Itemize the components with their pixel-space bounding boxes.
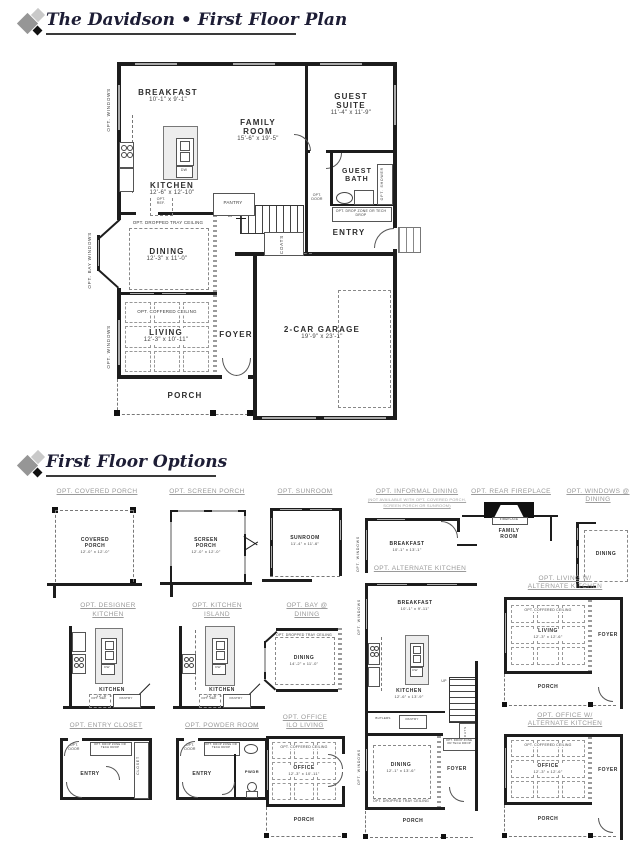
- option-title: OPT. ALTERNATE KITCHEN: [374, 565, 466, 572]
- room-dims: 15'-6" x 19'-5": [231, 136, 285, 143]
- window-segment: [340, 520, 341, 540]
- wall: [342, 786, 345, 806]
- door-arc: [180, 741, 195, 756]
- room-name: PORCH: [538, 685, 559, 691]
- entry-stoop: [398, 227, 421, 253]
- window-segment: [377, 584, 407, 585]
- room-name: PORCH: [294, 818, 315, 824]
- room-name: LIVING: [144, 328, 189, 337]
- window-segment: [366, 599, 367, 629]
- window-segment: [98, 240, 99, 266]
- french-door-arc: [328, 754, 343, 769]
- room-name: FOYER: [219, 330, 253, 339]
- house-wall: [262, 579, 312, 582]
- front-door-arc: [222, 358, 237, 376]
- room-name: DINING: [596, 552, 617, 558]
- door-opening: [310, 150, 326, 153]
- room-name: FOYER: [447, 767, 467, 773]
- room-label-porch: PORCH: [536, 817, 561, 823]
- room-dims: 10'-1" x 13'-1": [389, 548, 424, 553]
- screen-segment: [212, 510, 238, 512]
- room-name: COVERED PORCH: [75, 538, 115, 550]
- cased-opening-wall: [437, 736, 441, 807]
- window-segment: [130, 293, 154, 294]
- counter-line: [381, 637, 382, 691]
- wall: [620, 597, 623, 709]
- option-title: OPT. INFORMAL DINING: [376, 488, 458, 495]
- coats-label: COATS: [280, 235, 285, 254]
- room-label-porch: PORCH: [166, 391, 205, 400]
- porch-post: [588, 833, 593, 838]
- porch-post: [502, 702, 507, 707]
- french-door-arc: [328, 772, 343, 787]
- wall: [330, 150, 333, 206]
- room-name: PORCH: [403, 819, 424, 825]
- option-sunroom: OPT. SUNROOM SUNROOM 11'-4" x 11'-6": [262, 488, 350, 600]
- option-title: OPT. BAY @: [286, 602, 327, 609]
- island-sink-bowl: [413, 655, 421, 663]
- room-label-guest-suite: GUEST SUITE 11'-4" x 11'-9": [327, 92, 375, 117]
- room-label: ENTRY: [190, 772, 213, 778]
- room-dims: 12'-6" x 12'-10": [149, 190, 194, 197]
- room-label-garage: 2-CAR GARAGE 19'-9" x 23'-1": [282, 325, 362, 341]
- options-header: First Floor Options: [0, 448, 640, 488]
- wall: [342, 736, 345, 754]
- wall: [60, 738, 63, 800]
- house-wall: [170, 582, 173, 597]
- option-title: OPT. KITCHEN: [192, 602, 242, 609]
- pantry-label: PANTRY: [223, 200, 242, 205]
- room-dims: 12'-1" x 13'-6": [386, 769, 415, 774]
- room-name: PORCH: [538, 817, 559, 823]
- stairs: [449, 677, 477, 723]
- room-label-foyer: FOYER: [445, 767, 469, 773]
- room-label-foyer: FOYER: [596, 633, 620, 639]
- option-title: DINING: [294, 611, 319, 618]
- drop-zone-label: OPT. DROP ZONE OR TECH DROP: [444, 739, 474, 746]
- option-title: ILO LIVING: [286, 722, 324, 729]
- door-arc: [64, 741, 79, 756]
- room-label: FAMILY ROOM: [491, 529, 527, 541]
- room-label-foyer: FOYER: [217, 330, 255, 339]
- front-wall: [266, 804, 345, 807]
- porch-post: [210, 410, 216, 416]
- option-title: OPT. OFFICE: [283, 714, 328, 721]
- island-sink-bowl: [105, 651, 114, 660]
- option-title: ALTERNATE KITCHEN: [528, 583, 602, 590]
- option-designer-kitchen: OPT. DESIGNER KITCHEN DW KITCHEN 12'-6" …: [55, 600, 160, 720]
- room-name: GUEST BATH: [340, 168, 374, 184]
- wall: [365, 807, 445, 810]
- garage-door-segment: [262, 417, 316, 419]
- porch-edge: [266, 807, 267, 836]
- window-segment: [310, 509, 332, 510]
- logo-diamond-black: [33, 26, 43, 36]
- opt-windows-label: OPT. WINDOWS: [358, 749, 362, 785]
- room-label: DINING: [594, 552, 619, 558]
- opt-ref-label: OPT. REF.: [153, 197, 169, 205]
- front-door-arc: [598, 818, 613, 833]
- room-name: FOYER: [598, 633, 618, 639]
- front-door-arc: [236, 358, 251, 376]
- door-arc: [66, 782, 82, 798]
- burner: [374, 646, 379, 651]
- cased-opening-wall: [338, 628, 342, 692]
- house-wall: [53, 583, 56, 598]
- burner: [79, 657, 84, 662]
- wall: [234, 754, 236, 797]
- wall: [276, 689, 340, 692]
- option-title: OPT. COVERED PORCH: [57, 488, 138, 495]
- window-segment: [366, 530, 367, 560]
- screen-segment: [244, 556, 246, 574]
- dw-label: DW: [215, 666, 220, 670]
- pantry-label: PANTRY: [405, 718, 418, 722]
- dw-label: DW: [104, 666, 109, 670]
- opt-ref-label: OPT. REF.: [201, 697, 217, 701]
- wall: [149, 738, 152, 800]
- room-name: FAMILY ROOM: [493, 529, 525, 541]
- room-dims: 12'-0" x 12'-0": [75, 550, 115, 555]
- window-segment: [320, 63, 362, 65]
- island-sink-bowl: [216, 641, 225, 650]
- house-wall: [160, 582, 252, 585]
- option-bay-at-dining: OPT. BAY @ DINING OPT. DROPPED TRAY CEIL…: [262, 600, 352, 720]
- room-label: BREAKFAST 10'-1" x 13'-1": [387, 542, 426, 552]
- option-title: OPT. ENTRY CLOSET: [70, 722, 143, 729]
- option-title: OPT. SUNROOM: [278, 488, 333, 495]
- bath-vanity: [354, 190, 374, 205]
- window-segment: [118, 85, 120, 130]
- window-segment: [577, 528, 578, 540]
- plan-header: The Davidson • First Floor Plan: [0, 0, 640, 46]
- room-name: BREAKFAST: [138, 88, 198, 97]
- wall: [305, 150, 308, 255]
- window-segment: [377, 519, 405, 520]
- wall: [176, 738, 179, 800]
- door-arc: [294, 134, 311, 151]
- page-title: The Davidson • First Floor Plan: [46, 10, 347, 30]
- fridge: [119, 168, 134, 192]
- dw-label: DW: [412, 669, 417, 673]
- screen-segment: [178, 510, 204, 512]
- burner: [79, 663, 84, 668]
- wall: [266, 736, 342, 739]
- room-label: COVERED PORCH 12'-0" x 12'-0": [73, 538, 117, 554]
- wall: [276, 628, 340, 631]
- island-sink-bowl: [180, 141, 190, 151]
- burner: [189, 657, 194, 662]
- burner: [127, 152, 133, 158]
- wall: [462, 515, 484, 517]
- toilet-tank: [246, 791, 258, 798]
- room-label: OFFICE 12'-3" x 10'-11": [286, 766, 321, 776]
- burner: [127, 145, 133, 151]
- option-title: OPT. DESIGNER: [80, 602, 135, 609]
- window-segment: [162, 293, 186, 294]
- room-name: ENTRY: [80, 772, 99, 778]
- room-dims: 12'-3" x 11'-0": [147, 256, 188, 263]
- option-screen-porch: OPT. SCREEN PORCH SCREEN PORCH 12'-0" x …: [158, 488, 258, 600]
- tray-ceiling-label: OPT. DROPPED TRAY CEILING: [133, 220, 204, 225]
- option-note: (NOT AVAILABLE WITH OPT. COVERED PORCH,: [368, 497, 466, 502]
- angled-door: [139, 683, 150, 694]
- room-dims: 14'-2" x 11'-0": [290, 662, 319, 667]
- closet-label: CLOSET: [137, 756, 141, 775]
- room-label-breakfast: BREAKFAST 10'-1" x 9'-11": [395, 601, 434, 611]
- window-segment: [135, 63, 177, 65]
- oven-cabinet: [72, 632, 86, 652]
- room-name: FOYER: [598, 768, 618, 774]
- house-wall: [47, 583, 142, 586]
- room-label: LIVING 12'-3" x 12'-6": [531, 629, 564, 639]
- bay-wall: [99, 219, 120, 239]
- pantry-label: PANTRY: [229, 697, 242, 701]
- room-name: SCREEN PORCH: [188, 538, 224, 550]
- island-sink-bowl: [413, 646, 421, 654]
- porch-edge: [55, 510, 56, 582]
- porch-edge: [117, 414, 253, 415]
- room-name: ENTRY: [333, 228, 366, 237]
- wall: [620, 734, 623, 840]
- window-segment: [280, 509, 302, 510]
- room-dims: 12'-6" x 13'-9": [394, 695, 423, 700]
- front-wall: [504, 671, 592, 674]
- garage-dashed-area: [338, 290, 391, 408]
- opt-windows-label: OPT. WINDOWS: [358, 599, 362, 635]
- porch-post: [114, 410, 120, 416]
- window-segment: [118, 320, 120, 365]
- option-note: SCREEN PORCH OR SUNROOM): [383, 503, 450, 508]
- option-title: DINING: [585, 496, 610, 503]
- room-label-porch: PORCH: [292, 818, 317, 824]
- wall: [550, 517, 552, 541]
- butlers-label: BUTLERS: [375, 717, 390, 721]
- room-dims: 10'-1" x 9'-11": [397, 607, 432, 612]
- option-covered-porch: OPT. COVERED PORCH COVERED PORCH 12'-0" …: [45, 488, 150, 600]
- room-name: KITCHEN: [149, 181, 194, 190]
- room-dims: 12'-0" x 12'-0": [188, 550, 224, 555]
- burner: [374, 652, 379, 657]
- option-kitchen-island: OPT. KITCHEN ISLAND DW KITCHEN 12'-6" x …: [165, 600, 270, 720]
- porch-post: [342, 833, 347, 838]
- option-entry-closet: OPT. ENTRY CLOSET OPT. DOOR OPT. DROP ZO…: [50, 722, 162, 820]
- room-dims: 12'-3" x 12'-6": [533, 635, 562, 640]
- wall: [504, 597, 622, 600]
- wall: [475, 661, 478, 811]
- wall: [576, 522, 596, 524]
- logo-diamond-black: [33, 468, 43, 478]
- porch-post: [363, 834, 368, 839]
- pantry-label: PANTRY: [119, 697, 132, 701]
- room-name: GUEST SUITE: [329, 92, 373, 110]
- opt-door-label: OPT. DOOR: [310, 193, 324, 201]
- window-segment: [505, 613, 506, 653]
- option-title: OPT. SCREEN PORCH: [169, 488, 244, 495]
- room-name: PWDR: [245, 770, 259, 775]
- option-rear-fireplace: OPT. REAR FIREPLACE FIREPLACE FAMILY ROO…: [462, 488, 562, 550]
- options-section-title: First Floor Options: [46, 452, 227, 472]
- room-name: ENTRY: [192, 772, 211, 778]
- wall: [365, 711, 445, 713]
- floor-plan-sheet: The Davidson • First Floor Plan: [0, 0, 640, 842]
- option-title: OPT. LIVING W/: [539, 575, 592, 582]
- option-title: ALTERNATE KITCHEN: [528, 720, 602, 727]
- room-label-entry: ENTRY: [331, 228, 368, 237]
- room-name: 2-CAR GARAGE: [284, 325, 360, 334]
- bay-wall: [98, 269, 119, 289]
- room-label-guest-bath: GUEST BATH: [338, 168, 376, 184]
- fridge: [368, 667, 380, 687]
- porch-edge: [504, 705, 616, 706]
- wall: [534, 515, 558, 517]
- window-segment: [271, 518, 272, 540]
- door-arc: [326, 153, 342, 169]
- window-segment: [505, 748, 506, 788]
- bath-sink: [336, 192, 353, 204]
- room-name: FAMILY ROOM: [231, 118, 285, 136]
- room-dims: 12'-3" x 12'-6": [533, 770, 562, 775]
- screen-segment: [170, 522, 172, 566]
- option-alternate-kitchen: OPT. ALTERNATE KITCHEN OPT. WINDOWS BREA…: [357, 565, 483, 842]
- coffered-ceiling-label: OPT. COFFERED CEILING: [280, 745, 327, 749]
- wall: [457, 518, 460, 532]
- door-arc: [441, 521, 458, 538]
- room-label: DINING 14'-2" x 11'-0": [288, 656, 321, 666]
- front-door-arc: [449, 787, 464, 802]
- stairs-arrow: [236, 218, 246, 219]
- cased-opening-wall: [588, 600, 592, 673]
- front-wall: [117, 375, 222, 379]
- option-title: OPT. WINDOWS @: [566, 488, 629, 495]
- opt-shower-label: OPT. SHOWER: [381, 167, 385, 200]
- room-label: OFFICE 12'-3" x 12'-6": [531, 764, 564, 774]
- room-dims: 11'-4" x 11'-6": [290, 542, 320, 547]
- option-office-alt-kitchen: OPT. OFFICE W/ ALTERNATE KITCHEN OPT. CO…: [490, 712, 640, 842]
- coffered-ceiling-label: OPT. COFFERED CEILING: [137, 309, 196, 314]
- room-dims: 19'-9" x 23'-1": [284, 334, 360, 341]
- island-sink-bowl: [180, 152, 190, 162]
- porch-edge: [266, 836, 346, 837]
- removed-wall-line: [270, 576, 340, 577]
- up-label: UP: [441, 679, 446, 683]
- room-dims: 11'-4" x 11'-9": [329, 110, 373, 117]
- porch-edge: [504, 836, 616, 837]
- burner: [189, 663, 194, 668]
- dw-label: DW: [181, 168, 187, 172]
- drop-zone-label: OPT. DROP ZONE OR TECH DROP: [335, 209, 387, 217]
- cased-opening-wall: [588, 737, 592, 804]
- drop-zone-label: OPT. DROP ZONE OR TECH DROP: [91, 743, 129, 750]
- powder-sink: [244, 744, 258, 754]
- room-label-kitchen: KITCHEN 12'-6" x 13'-9": [392, 689, 425, 699]
- option-living-alt-kitchen: OPT. LIVING W/ ALTERNATE KITCHEN OPT. CO…: [490, 575, 640, 715]
- window-segment: [267, 750, 268, 790]
- porch-edge: [133, 510, 134, 582]
- porch-edge: [504, 674, 505, 705]
- drop-zone-label: OPT. DROP ZONE OR TECH DROP: [205, 743, 237, 750]
- room-dims: 10'-1" x 9'-1": [138, 97, 198, 104]
- room-label-living: LIVING 12'-3" x 10'-11": [142, 328, 191, 344]
- wall: [365, 733, 443, 736]
- option-title: OPT. REAR FIREPLACE: [471, 488, 551, 495]
- screen-segment: [244, 516, 246, 534]
- room-label-dining: DINING 12'-1" x 13'-6": [384, 763, 417, 773]
- tray-ceiling-label: OPT. DROPPED TRAY CEILING: [276, 633, 332, 637]
- opt-bay-windows-label: OPT. BAY WINDOWS: [88, 232, 93, 289]
- opt-windows-label: OPT. WINDOWS: [107, 88, 112, 132]
- entry-door-arc: [374, 228, 394, 248]
- porch-post: [502, 833, 507, 838]
- garage-wall: [235, 252, 397, 256]
- option-title: KITCHEN: [92, 611, 123, 618]
- room-label-foyer: FOYER: [596, 768, 620, 774]
- title-underline: [46, 475, 216, 477]
- coffered-ceiling-label: OPT. COFFERED CEILING: [524, 743, 571, 747]
- option-office-ilo-living: OPT. OFFICE ILO LIVING OPT. COFFERED CEI…: [258, 714, 353, 842]
- screen-door-line: [244, 542, 258, 551]
- room-label-breakfast: BREAKFAST 10'-1" x 9'-1": [136, 88, 200, 104]
- coffered-ceiling-label: OPT. COFFERED CEILING: [524, 608, 571, 612]
- room-label: SCREEN PORCH 12'-0" x 12'-0": [186, 538, 226, 554]
- angled-door: [249, 683, 260, 694]
- room-label-kitchen: KITCHEN 12'-6" x 12'-10": [147, 181, 196, 197]
- porch-edge: [55, 510, 133, 511]
- room-label-family-room: FAMILY ROOM 15'-6" x 19'-5": [229, 118, 287, 143]
- room-label: ENTRY: [78, 772, 101, 778]
- room-label-porch: PORCH: [536, 685, 561, 691]
- tray-ceiling-label: OPT. DROPPED TRAY CEILING: [373, 799, 429, 803]
- cased-opening-wall: [213, 215, 217, 292]
- garage-door-segment: [324, 417, 386, 419]
- room-dims: 12'-3" x 10'-11": [144, 337, 189, 344]
- island-sink-bowl: [105, 641, 114, 650]
- opt-windows-label: OPT. WINDOWS: [107, 325, 112, 369]
- option-title: ISLAND: [204, 611, 230, 618]
- front-door-arc: [598, 687, 613, 702]
- porch-edge: [365, 837, 473, 838]
- porch-post: [264, 833, 269, 838]
- option-title: OPT. OFFICE W/: [537, 712, 592, 719]
- room-label-porch: PORCH: [401, 819, 426, 825]
- porch-edge: [504, 805, 505, 836]
- option-title: OPT. POWDER ROOM: [185, 722, 259, 729]
- window-segment: [233, 63, 275, 65]
- window-segment: [366, 749, 367, 771]
- door-arc: [182, 782, 198, 798]
- window-segment: [577, 546, 578, 558]
- window-segment: [394, 85, 396, 125]
- porch-post: [441, 834, 446, 839]
- window-segment: [427, 584, 457, 585]
- front-wall: [504, 802, 592, 805]
- window-segment: [271, 546, 272, 568]
- porch-post: [588, 702, 593, 707]
- room-dims: 12'-3" x 10'-11": [288, 772, 319, 777]
- fireplace-label: FIREPLACE: [500, 518, 518, 522]
- room-name: DINING: [147, 247, 188, 256]
- title-underline: [46, 33, 296, 35]
- room-label: SUNROOM 11'-4" x 11'-6": [288, 536, 322, 546]
- fireplace-glyph: [484, 502, 534, 518]
- door-arc: [106, 766, 120, 780]
- island-sink-bowl: [216, 651, 225, 660]
- room-name: PORCH: [168, 391, 203, 400]
- wall: [339, 508, 342, 576]
- window-segment: [264, 648, 266, 672]
- opt-ref-label: OPT. REF.: [91, 697, 107, 701]
- room-label-dining: DINING 12'-3" x 11'-0": [145, 247, 190, 263]
